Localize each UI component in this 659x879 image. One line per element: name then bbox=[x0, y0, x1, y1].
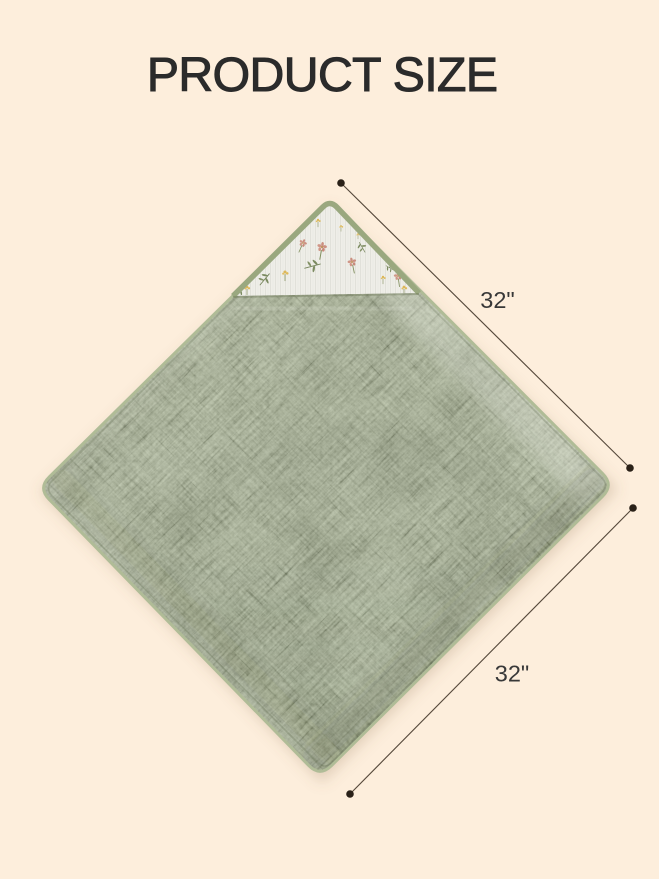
svg-text:32": 32" bbox=[480, 287, 514, 313]
svg-text:PRODUCT SIZE: PRODUCT SIZE bbox=[147, 48, 498, 102]
svg-text:32": 32" bbox=[495, 661, 529, 687]
